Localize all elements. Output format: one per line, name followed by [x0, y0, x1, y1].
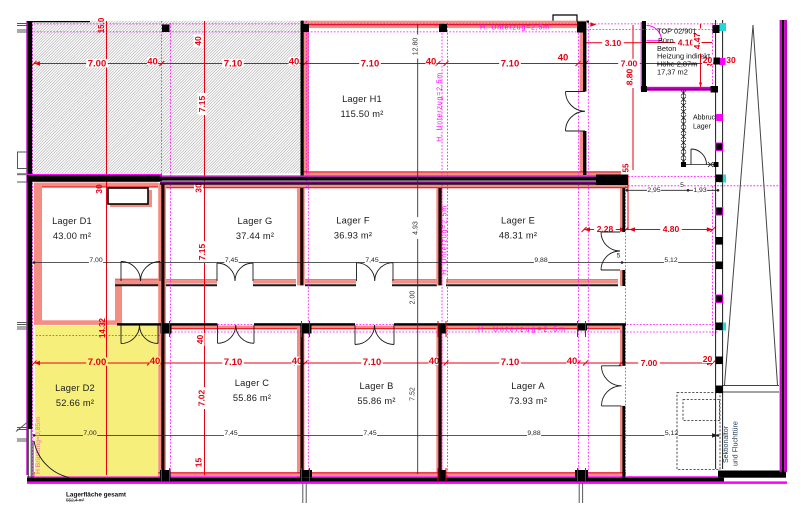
- svg-text:Lager C: Lager C: [235, 378, 270, 388]
- svg-text:14.32: 14.32: [98, 317, 107, 338]
- svg-text:40: 40: [289, 57, 300, 68]
- svg-text:7,00: 7,00: [83, 430, 96, 437]
- svg-text:1,93: 1,93: [693, 187, 706, 194]
- svg-text:7,45: 7,45: [365, 257, 378, 264]
- svg-text:H. Unterzug=2,5m: H. Unterzug=2,5m: [442, 205, 449, 275]
- svg-text:115.50 m²: 115.50 m²: [341, 109, 384, 119]
- svg-text:40: 40: [426, 57, 437, 68]
- svg-text:15: 15: [194, 458, 204, 468]
- svg-text:Lager: Lager: [693, 124, 712, 131]
- svg-text:55.86 m²: 55.86 m²: [233, 393, 271, 403]
- svg-text:552,4 m²: 552,4 m²: [66, 498, 85, 503]
- svg-text:7.00: 7.00: [88, 357, 107, 368]
- svg-text:5: 5: [617, 253, 621, 260]
- svg-text:7.10: 7.10: [501, 59, 520, 70]
- svg-text:7.15: 7.15: [197, 243, 207, 260]
- svg-text:Lager B: Lager B: [360, 381, 394, 391]
- svg-text:4.93: 4.93: [413, 221, 420, 235]
- svg-text:9,88: 9,88: [527, 430, 540, 437]
- svg-text:40: 40: [195, 335, 205, 345]
- svg-text:7,45: 7,45: [225, 257, 238, 264]
- svg-text:4.80: 4.80: [663, 224, 680, 234]
- svg-text:5: 5: [680, 182, 684, 189]
- svg-text:3.10: 3.10: [605, 38, 622, 48]
- svg-text:H Brüstung=0,85m: H Brüstung=0,85m: [35, 417, 42, 474]
- svg-text:H. Unterzug=2,5m: H. Unterzug=2,5m: [437, 72, 444, 142]
- svg-text:TOP 02/901: TOP 02/901: [657, 27, 697, 36]
- svg-text:2.00: 2.00: [410, 291, 417, 305]
- svg-text:H. Unterzug=2,5m: H. Unterzug=2,5m: [478, 327, 567, 334]
- svg-text:20: 20: [703, 354, 713, 364]
- svg-text:55: 55: [622, 163, 631, 172]
- svg-text:7.00: 7.00: [641, 358, 658, 368]
- svg-text:30: 30: [94, 184, 104, 194]
- svg-text:15.0: 15.0: [97, 17, 106, 33]
- svg-text:Sektionaltor: Sektionaltor: [723, 425, 730, 463]
- svg-text:Lager A: Lager A: [511, 381, 545, 391]
- svg-text:55.86 m²: 55.86 m²: [357, 396, 395, 406]
- svg-text:5,12: 5,12: [664, 257, 677, 264]
- svg-text:8.80: 8.80: [625, 68, 635, 85]
- svg-text:52.66 m²: 52.66 m²: [56, 398, 94, 408]
- svg-text:7.00: 7.00: [88, 59, 107, 70]
- svg-text:Lager D2: Lager D2: [55, 383, 95, 393]
- svg-text:37.44 m²: 37.44 m²: [236, 231, 274, 241]
- svg-text:Abbruch: Abbruch: [693, 115, 719, 122]
- svg-text:40: 40: [429, 356, 440, 367]
- svg-text:Lager D1: Lager D1: [52, 216, 92, 226]
- svg-text:7.10: 7.10: [501, 357, 520, 368]
- svg-text:7.10: 7.10: [224, 357, 243, 368]
- svg-text:7,00: 7,00: [89, 257, 102, 264]
- svg-text:40: 40: [193, 36, 203, 46]
- svg-text:7.10: 7.10: [224, 59, 243, 70]
- svg-text:Lager F: Lager F: [336, 216, 370, 226]
- svg-text:40: 40: [150, 356, 161, 367]
- svg-text:H. Unterzug=2,5m: H. Unterzug=2,5m: [480, 25, 550, 32]
- svg-text:7,45: 7,45: [363, 430, 376, 437]
- svg-text:Lager G: Lager G: [238, 216, 273, 226]
- svg-text:7,45: 7,45: [224, 430, 237, 437]
- svg-text:48.31 m²: 48.31 m²: [499, 231, 537, 241]
- svg-text:73.93 m²: 73.93 m²: [509, 396, 547, 406]
- svg-text:30: 30: [726, 55, 736, 65]
- svg-text:Lager E: Lager E: [501, 216, 535, 226]
- svg-text:40: 40: [558, 53, 569, 64]
- svg-text:7.10: 7.10: [361, 59, 380, 70]
- svg-text:2,95: 2,95: [647, 187, 660, 194]
- svg-text:7.10: 7.10: [363, 357, 382, 368]
- svg-text:36.93 m²: 36.93 m²: [334, 231, 372, 241]
- svg-text:7.15: 7.15: [197, 95, 207, 112]
- svg-text:12.80: 12.80: [413, 38, 420, 56]
- svg-text:und Fluchttüre: und Fluchttüre: [733, 421, 740, 466]
- svg-text:7.02: 7.02: [197, 389, 207, 406]
- svg-text:40: 40: [567, 356, 578, 367]
- svg-text:7.52: 7.52: [410, 387, 417, 401]
- svg-text:5,12: 5,12: [665, 430, 678, 437]
- svg-text:Lager H1: Lager H1: [342, 94, 382, 104]
- svg-text:43.00 m²: 43.00 m²: [53, 231, 91, 241]
- svg-text:40: 40: [147, 57, 158, 68]
- svg-text:2.28: 2.28: [597, 224, 614, 234]
- svg-text:17,37 m2: 17,37 m2: [657, 68, 688, 77]
- svg-text:9,88: 9,88: [534, 257, 547, 264]
